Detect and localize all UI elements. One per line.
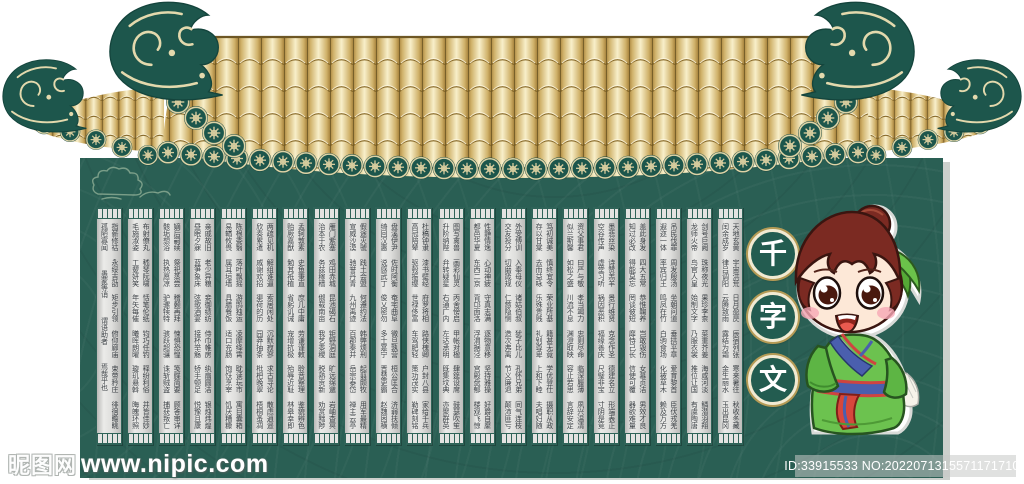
phrase: 言辞安定 <box>566 401 574 429</box>
phrase: 俶载南亩 <box>317 294 325 322</box>
phrase: 露结为霜 <box>721 330 729 358</box>
phrase: 寒来暑往 <box>731 365 739 393</box>
phrase: 济弱扶倾 <box>390 401 398 429</box>
phrase: 器欲难量 <box>628 401 636 429</box>
eave-flower-icon <box>709 152 732 175</box>
phrase: 年矢每催 <box>131 294 139 322</box>
phrase: 省躬讥诫 <box>286 294 294 322</box>
phrase: 鸣凤在竹 <box>659 294 667 322</box>
phrase: 克念作圣 <box>607 330 615 358</box>
phrase: 垂拱平章 <box>669 330 677 358</box>
meander-border <box>470 433 494 444</box>
phrase: 夙兴温凊 <box>576 401 584 429</box>
phrase: 耽读玩市 <box>235 365 243 393</box>
meander-border <box>314 208 338 219</box>
text-strip: 吊民伐罪周发殷汤坐朝问道垂拱平章爱育黎首臣伏戎羌遐迩一体率宾归王鸣凤在竹白驹食场… <box>655 207 681 445</box>
phrase: 信使可覆 <box>628 365 636 393</box>
eave-flower-icon <box>222 134 246 158</box>
phrase: 用军最精 <box>359 401 367 429</box>
phrase: 果珍李柰 <box>700 294 708 322</box>
text-strip: 资父事君曰严与敬孝当竭力忠则尽命临深履薄夙兴温凊似兰斯馨如松之盛川流不息渊澄取映… <box>562 207 588 445</box>
phrase: 税熟贡新 <box>317 365 325 393</box>
phrase: 我艺黍稷 <box>317 330 325 358</box>
strip-column-right: 外受傅训入奉母仪诸姑伯叔犹子比儿孔怀兄弟同气连枝 <box>514 223 522 429</box>
phrase: 嵇琴阮啸 <box>142 259 150 287</box>
meander-border <box>252 433 276 444</box>
phrase: 索居闲处 <box>266 294 274 322</box>
phrase: 寸阴是竞 <box>597 401 605 429</box>
strip-column-left: 昼眠夕寐蓝笋象床弦歌酒宴接杯举觞矫手顿足悦豫且康 <box>193 223 201 429</box>
strip-column-right: 杜稿钟隶漆书壁经府罗将相路侠槐卿户封八县家给千兵 <box>421 223 429 429</box>
phrase: 律吕调阳 <box>721 259 729 287</box>
phrase: 岂敢毁伤 <box>638 330 646 358</box>
phrase: 旷远绵邈 <box>328 365 336 393</box>
phrase: 妾御绩纺 <box>204 294 212 322</box>
eave-flower-icon <box>548 157 571 180</box>
phrase: 易輶攸畏 <box>224 223 232 251</box>
phrase: 赖及万方 <box>659 401 667 429</box>
eave-flower-icon <box>798 121 822 145</box>
phrase: 桓公匡合 <box>390 365 398 393</box>
phrase: 楼观飞惊 <box>473 401 481 429</box>
text-strip: 孟轲敦素史鱼秉直庶几中庸劳谦谨敕聆音察理鉴貌辨色贻厥嘉猷勉其祗植省躬讥诫宠增抗极… <box>282 207 308 445</box>
phrase: 仁慈隐恻 <box>504 294 512 322</box>
phrase: 渊澄取映 <box>566 330 574 358</box>
eave-flower-icon <box>410 156 433 179</box>
phrase: 德建名立 <box>607 365 615 393</box>
phrase: 岳宗泰岱 <box>348 365 356 393</box>
meander-border <box>159 433 183 444</box>
phrase: 鸡田赤城 <box>328 259 336 287</box>
phrase: 两疏见机 <box>266 223 274 251</box>
phrase: 始制文字 <box>690 294 698 322</box>
meander-border <box>656 433 680 444</box>
phrase: 曦晖朗曜 <box>131 330 139 358</box>
phrase: 宠增抗极 <box>286 330 294 358</box>
phrase: 家给千兵 <box>421 401 429 429</box>
phrase: 云腾致雨 <box>721 294 729 322</box>
strip-column-left: 遐迩一体率宾归王鸣凤在竹白驹食场化被草木赖及万方 <box>659 223 667 429</box>
eave-flower-icon <box>801 145 824 168</box>
meander-border <box>345 208 369 219</box>
phrase: 诗赞羔羊 <box>607 259 615 287</box>
phrase: 老少异粮 <box>204 259 212 287</box>
phrase: 夫唱妇随 <box>535 401 543 429</box>
phrase: 昼眠夕寐 <box>193 223 201 251</box>
text-strip: 笃初诚美慎终宜令荣业所基籍甚无竟学优登仕摄职从政存以甘棠去而益咏乐殊贵贱礼别尊卑… <box>531 207 557 445</box>
phrase: 虚堂习听 <box>597 259 605 287</box>
phrase: 韩弊烦刑 <box>359 330 367 358</box>
phrase: 勉其祗植 <box>286 259 294 287</box>
phrase: 都邑华夏 <box>473 223 481 251</box>
phrase: 聆音察理 <box>297 365 305 393</box>
roof-finial-icon <box>801 2 914 100</box>
phrase: 孝当竭力 <box>576 294 584 322</box>
phrase: 矩步引领 <box>110 294 118 322</box>
phrase: 甲帐对楹 <box>452 330 460 358</box>
strip-column-left: 孤陋寡闻愚蒙等诮谓语助者焉哉乎也 <box>100 223 108 429</box>
phrase: 祸因恶积 <box>597 294 605 322</box>
strip-column-right: 盘溪伊尹佐时阿衡奄宅曲阜微旦孰营桓公匡合济弱扶倾 <box>390 223 398 429</box>
phrase: 空谷传声 <box>597 223 605 251</box>
phrase: 鉴貌辨色 <box>297 401 305 429</box>
phrase: 坚持雅操 <box>483 365 491 393</box>
strip-column-right: 剑号巨阙珠称夜光果珍李柰菜重芥姜海咸河淡鳞潜羽翔 <box>700 223 708 429</box>
phrase: 日月盈昃 <box>731 294 739 322</box>
phrase: 忠则尽命 <box>576 330 584 358</box>
strip-column-left: 空谷传声虚堂习听祸因恶积福缘善庆尺璧非宝寸阴是竞 <box>597 223 605 429</box>
phrase: 宫殿盘郁 <box>473 365 481 393</box>
text-strip: 盘溪伊尹佐时阿衡奄宅曲阜微旦孰营桓公匡合济弱扶倾绮回汉惠说感武丁俊乂密勿多士寔宁… <box>375 207 401 445</box>
meander-border <box>97 433 121 444</box>
strip-column-right: 陈根委翳落叶飘摇游鹍独运凌摩绛霄耽读玩市寓目囊箱 <box>235 223 243 429</box>
phrase: 弁转疑星 <box>441 259 449 287</box>
phrase: 嫡后嗣续 <box>173 223 181 251</box>
eave-flower-icon <box>203 145 226 168</box>
phrase: 男效才良 <box>638 401 646 429</box>
eave-flower-icon <box>272 150 295 173</box>
phrase: 女慕贞洁 <box>638 365 646 393</box>
text-strip: 亲戚故旧老少异粮妾御绩纺侍巾帷房纨扇圆洁银烛炜煌昼眠夕寐蓝笋象床弦歌酒宴接杯举觞… <box>189 207 215 445</box>
phrase: 乃服衣裳 <box>690 330 698 358</box>
text-strip: 指薪修祜永绥吉劭矩步引领俯仰廊庙束带矜庄徘徊瞻眺孤陋寡闻愚蒙等诮谓语助者焉哉乎也 <box>96 207 122 445</box>
phrase: 矫手顿足 <box>193 365 201 393</box>
meander-border <box>439 208 463 219</box>
phrase: 逐物意移 <box>483 330 491 358</box>
phrase: 去而益咏 <box>535 259 543 287</box>
strip-column-left: 龙师火帝鸟官人皇始制文字乃服衣裳推位让国有虞陶唐 <box>690 223 698 429</box>
phrase: 祭祀蒸尝 <box>173 259 181 287</box>
phrase: 肆筵设席 <box>452 365 460 393</box>
phrase: 枇杷晚翠 <box>255 365 263 393</box>
phrase: 奄宅曲阜 <box>390 294 398 322</box>
phrase: 浮渭据泾 <box>473 330 481 358</box>
phrase: 鸟官人皇 <box>690 259 698 287</box>
phrase: 鳞潜羽翔 <box>700 401 708 429</box>
text-strip: 雁门紫塞鸡田赤城昆池碣石钜野洞庭旷远绵邈岩岫杳冥治本于农务兹稼穑俶载南亩我艺黍稷… <box>313 207 339 445</box>
phrase: 化被草木 <box>659 365 667 393</box>
meander-border <box>501 208 525 219</box>
phrase: 绮回汉惠 <box>379 223 387 251</box>
meander-border <box>501 433 525 444</box>
meander-border <box>594 208 618 219</box>
meander-border <box>532 208 556 219</box>
phrase: 钧巧任钓 <box>142 330 150 358</box>
strip-column-right: 布射僚丸嵇琴阮啸恬笔伦纸钧巧任钓释纷利俗并皆佳妙 <box>142 223 150 429</box>
phrase: 孔怀兄弟 <box>514 365 522 393</box>
meander-border <box>656 208 680 219</box>
phrase: 东西二京 <box>473 259 481 287</box>
eave-flower-icon <box>138 145 159 166</box>
phrase: 稽颡再拜 <box>173 294 181 322</box>
phrase: 遐迩一体 <box>659 223 667 251</box>
phrase: 具膳餐饭 <box>224 294 232 322</box>
eave-flower-icon <box>640 155 663 178</box>
phrase: 愚蒙等诮 <box>100 270 108 298</box>
phrase: 背邙面洛 <box>473 294 481 322</box>
meander-border <box>594 433 618 444</box>
phrase: 接杯举觞 <box>193 330 201 358</box>
phrase: 永绥吉劭 <box>110 259 118 287</box>
phrase: 诛斩贼盗 <box>162 365 170 393</box>
strip-column-right: 假途灭虢践土会盟何遵约法韩弊烦刑起翦颇牧用军最精 <box>359 223 367 429</box>
stock-id-text: ID:33915533 NO:20220713155711717104 <box>784 459 1024 473</box>
text-strip: 外受傅训入奉母仪诸姑伯叔犹子比儿孔怀兄弟同气连枝交友投分切磨箴规仁慈隐恻造次弗离… <box>500 207 526 445</box>
phrase: 路侠槐卿 <box>421 330 429 358</box>
strip-column-left: 交友投分切磨箴规仁慈隐恻造次弗离节义廉退颠沛匪亏 <box>504 223 512 429</box>
meander-border <box>687 433 711 444</box>
phrase: 践土会盟 <box>359 259 367 287</box>
phrase: 散虑逍遥 <box>266 401 274 429</box>
phrase: 戚谢欢招 <box>255 259 263 287</box>
strip-column-right: 两疏见机解组谁逼索居闲处沉默寂寥求古寻论散虑逍遥 <box>266 223 274 429</box>
phrase: 弦歌酒宴 <box>193 294 201 322</box>
phrase: 并皆佳妙 <box>142 401 150 429</box>
strip-column-left: 高冠陪辇驱毂振缨世禄侈富车驾肥轻策功茂实勒碑刻铭 <box>410 223 418 429</box>
phrase: 菜重芥姜 <box>700 330 708 358</box>
meander-border <box>407 208 431 219</box>
phrase: 犹子比儿 <box>514 330 522 358</box>
phrase: 存以甘棠 <box>535 223 543 251</box>
phrase: 策功茂实 <box>410 365 418 393</box>
strip-column-right: 资父事君曰严与敬孝当竭力忠则尽命临深履薄夙兴温凊 <box>576 223 584 429</box>
meander-border <box>283 433 307 444</box>
phrase: 爱育黎首 <box>669 365 677 393</box>
phrase: 欣奏累遣 <box>255 223 263 251</box>
text-strip: 图写禽兽画彩仙灵丙舍傍启甲帐对楹肆筵设席鼓瑟吹笙升阶纳陛弁转疑星右通广内左达承明… <box>438 207 464 445</box>
phrase: 盘溪伊尹 <box>390 223 398 251</box>
phrase: 亦聚群英 <box>441 401 449 429</box>
phrase: 劝赏黜陟 <box>317 401 325 429</box>
strip-column-right: 指薪修祜永绥吉劭矩步引领俯仰廊庙束带矜庄徘徊瞻眺 <box>110 223 118 429</box>
phrase: 秋收冬藏 <box>731 401 739 429</box>
phrase: 乐殊贵贱 <box>535 294 543 322</box>
meander-border <box>252 208 276 219</box>
phrase: 纨扇圆洁 <box>204 365 212 393</box>
strip-column-right: 天地玄黄宇宙洪荒日月盈昃辰宿列张寒来暑往秋收冬藏 <box>731 223 739 429</box>
phrase: 恬笔伦纸 <box>142 294 150 322</box>
phrase: 起翦颇牧 <box>359 365 367 393</box>
phrase: 宇宙洪荒 <box>731 259 739 287</box>
phrase: 丙舍傍启 <box>452 294 460 322</box>
phrase: 布射僚丸 <box>142 223 150 251</box>
phrase: 属耳垣墙 <box>224 259 232 287</box>
phrase: 四大五常 <box>638 259 646 287</box>
phrase: 治本于农 <box>317 223 325 251</box>
strip-column-left: 易輶攸畏属耳垣墙具膳餐饭适口充肠饱饫烹宰饥厌糟糠 <box>224 223 232 429</box>
eave-flower-icon <box>778 134 802 158</box>
phrase: 百郡秦并 <box>348 330 356 358</box>
phrase: 龙师火帝 <box>690 223 698 251</box>
phrase: 形端表正 <box>607 401 615 429</box>
meander-border <box>407 433 431 444</box>
phrase: 岩岫杳冥 <box>328 401 336 429</box>
meander-border <box>532 433 556 444</box>
phrase: 捕获叛亡 <box>162 401 170 429</box>
phrase: 尺璧非宝 <box>597 365 605 393</box>
strip-column-left: 贻厥嘉猷勉其祗植省躬讥诫宠增抗极殆辱近耻林皋幸即 <box>286 223 294 429</box>
strip-column-right: 图写禽兽画彩仙灵丙舍傍启甲帐对楹肆筵设席鼓瑟吹笙 <box>452 223 460 429</box>
meander-border <box>97 208 121 219</box>
phrase: 钜野洞庭 <box>328 330 336 358</box>
phrase: 庶几中庸 <box>297 294 305 322</box>
eave-flower-icon <box>364 155 387 178</box>
meander-border <box>718 208 742 219</box>
phrase: 凌摩绛霄 <box>235 330 243 358</box>
meander-border <box>283 208 307 219</box>
strip-column-left: 都邑华夏东西二京背邙面洛浮渭据泾宫殿盘郁楼观飞惊 <box>473 223 481 429</box>
phrase: 晦魄环照 <box>131 401 139 429</box>
meander-border <box>128 433 152 444</box>
eave-flower-icon <box>525 158 548 181</box>
phrase: 如松之盛 <box>566 259 574 287</box>
text-strip: 两疏见机解组谁逼索居闲处沉默寂寥求古寻论散虑逍遥欣奏累遣戚谢欢招渠荷的历园莽抽条… <box>251 207 277 445</box>
meander-border <box>159 208 183 219</box>
phrase: 颠沛匪亏 <box>504 401 512 429</box>
phrase: 微旦孰营 <box>390 330 398 358</box>
phrase: 吊民伐罪 <box>669 223 677 251</box>
phrase: 驱毂振缨 <box>410 259 418 287</box>
strip-column-left: 似兰斯馨如松之盛川流不息渊澄取映容止若思言辞安定 <box>566 223 574 429</box>
text-strip: 墨悲丝染诗赞羔羊景行维贤克念作圣德建名立形端表正空谷传声虚堂习听祸因恶积福缘善庆… <box>593 207 619 445</box>
phrase: 上和下睦 <box>535 365 543 393</box>
strip-column-right: 嫡后嗣续祭祀蒸尝稽颡再拜悚惧恐惶笺牒简要顾答审详 <box>173 223 181 429</box>
eave-flower-icon <box>318 153 341 176</box>
watermark: 昵图网 www.nipic.com <box>8 448 269 480</box>
phrase: 孟轲敦素 <box>297 223 305 251</box>
phrase: 俊乂密勿 <box>379 294 387 322</box>
roof <box>0 0 1024 195</box>
eave-flower-icon <box>617 156 640 179</box>
phrase: 林皋幸即 <box>286 401 294 429</box>
phrase: 俯仰廊庙 <box>110 330 118 358</box>
phrase: 求古寻论 <box>266 365 274 393</box>
meander-border <box>563 208 587 219</box>
strip-column-right: 盖此身发四大五常恭惟鞠养岂敢毁伤女慕贞洁男效才良 <box>638 223 646 429</box>
phrase: 天地玄黄 <box>731 223 739 251</box>
phrase: 车驾肥轻 <box>410 330 418 358</box>
strip-column-right: 亲戚故旧老少异粮妾御绩纺侍巾帷房纨扇圆洁银烛炜煌 <box>204 223 212 429</box>
phrase: 升阶纳陛 <box>441 223 449 251</box>
phrase: 笺牒简要 <box>173 365 181 393</box>
phrase: 务兹稼穑 <box>317 259 325 287</box>
phrase: 多士寔宁 <box>379 330 387 358</box>
phrase: 梧桐蚤凋 <box>255 401 263 429</box>
strip-column-left: 闰余成岁律吕调阳云腾致雨露结为霜金生丽水玉出昆冈 <box>721 223 729 429</box>
phrase: 饱饫烹宰 <box>224 365 232 393</box>
strip-column-left: 治本于农务兹稼穑俶载南亩我艺黍稷税熟贡新劝赏黜陟 <box>317 223 325 429</box>
phrase: 佐时阿衡 <box>390 259 398 287</box>
roof-finial-icon <box>3 60 87 132</box>
phrase: 游鹍独运 <box>235 294 243 322</box>
eave-flower-icon <box>341 154 364 177</box>
phrase: 悦豫且康 <box>193 401 201 429</box>
phrase: 图写禽兽 <box>452 223 460 251</box>
phrase: 右通广内 <box>441 294 449 322</box>
site-url-text: www.nipic.com <box>81 450 269 479</box>
eave-flower-icon <box>866 145 887 166</box>
eave-flower-icon <box>112 137 133 158</box>
meander-border <box>190 433 214 444</box>
phrase: 容止若思 <box>566 365 574 393</box>
meander-border <box>128 208 152 219</box>
phrase: 何遵约法 <box>359 294 367 322</box>
phrase: 银烛炜煌 <box>204 401 212 429</box>
text-strip: 嫡后嗣续祭祀蒸尝稽颡再拜悚惧恐惶笺牒简要顾答审详骸垢想浴执热愿凉驴骡犊特骇跃超骧… <box>158 207 184 445</box>
eave-flower-icon <box>86 129 107 150</box>
phrase: 好爵自縻 <box>483 401 491 429</box>
phrase: 珠称夜光 <box>700 259 708 287</box>
phrase: 墨悲丝染 <box>607 223 615 251</box>
phrase: 靡恃己长 <box>628 330 636 358</box>
strip-column-right: 雁门紫塞鸡田赤城昆池碣石钜野洞庭旷远绵邈岩岫杳冥 <box>328 223 336 429</box>
strip-column-right: 吊民伐罪周发殷汤坐朝问道垂拱平章爱育黎首臣伏戎羌 <box>669 223 677 429</box>
eave-flower-icon <box>755 149 778 172</box>
strips-row: 天地玄黄宇宙洪荒日月盈昃辰宿列张寒来暑往秋收冬藏闰余成岁律吕调阳云腾致雨露结为霜… <box>96 207 743 445</box>
phrase: 恭惟鞠养 <box>638 294 646 322</box>
phrase: 园莽抽条 <box>255 330 263 358</box>
phrase: 雁门紫塞 <box>328 223 336 251</box>
eave-flower-icon <box>502 158 525 181</box>
meander-border <box>345 433 369 444</box>
phrase: 心动神疲 <box>483 259 491 287</box>
phrase: 孤陋寡闻 <box>100 223 108 251</box>
phrase: 玉出昆冈 <box>721 401 729 429</box>
phrase: 坐朝问道 <box>669 294 677 322</box>
meander-border <box>376 433 400 444</box>
roof-finial-icon <box>938 60 1022 132</box>
strip-column-left: 升阶纳陛弁转疑星右通广内左达承明既集坟典亦聚群英 <box>441 223 449 429</box>
phrase: 昆池碣石 <box>328 294 336 322</box>
phrase: 解组谁逼 <box>266 259 274 287</box>
strip-column-left: 毛施淑姿工颦妍笑年矢每催曦晖朗曜璇玑悬斡晦魄环照 <box>131 223 139 429</box>
phrase: 得能莫忘 <box>628 259 636 287</box>
eave-flower-icon <box>686 153 709 176</box>
phrase: 鼓瑟吹笙 <box>452 401 460 429</box>
phrase: 罔谈彼短 <box>628 294 636 322</box>
meander-border <box>687 208 711 219</box>
phrase: 福缘善庆 <box>597 330 605 358</box>
text-strip: 杜稿钟隶漆书壁经府罗将相路侠槐卿户封八县家给千兵高冠陪辇驱毂振缨世禄侈富车驾肥轻… <box>406 207 432 445</box>
text-strip: 性静情逸心动神疲守真志满逐物意移坚持雅操好爵自縻都邑华夏东西二京背邙面洛浮渭据泾… <box>469 207 495 445</box>
phrase: 骸垢想浴 <box>162 223 170 251</box>
phrase: 似兰斯馨 <box>566 223 574 251</box>
phrase: 率宾归王 <box>659 259 667 287</box>
phrase: 宣威沙漠 <box>348 223 356 251</box>
phrase: 籍甚无竟 <box>545 330 553 358</box>
phrase: 周发殷汤 <box>669 259 677 287</box>
text-strip: 剑号巨阙珠称夜光果珍李柰菜重芥姜海咸河淡鳞潜羽翔龙师火帝鸟官人皇始制文字乃服衣裳… <box>686 207 712 445</box>
phrase: 悚惧恐惶 <box>173 330 181 358</box>
phrase: 寓目囊箱 <box>235 401 243 429</box>
phrase: 交友投分 <box>504 223 512 251</box>
text-strip: 天地玄黄宇宙洪荒日月盈昃辰宿列张寒来暑往秋收冬藏闰余成岁律吕调阳云腾致雨露结为霜… <box>717 207 743 445</box>
mascot-character <box>780 198 935 438</box>
phrase: 慎终宜令 <box>545 259 553 287</box>
strip-column-left: 绮回汉惠说感武丁俊乂密勿多士寔宁晋楚更霸赵魏困横 <box>379 223 387 429</box>
phrase: 禅主云亭 <box>348 401 356 429</box>
phrase: 焉哉乎也 <box>100 363 108 391</box>
phrase: 既集坟典 <box>441 365 449 393</box>
eave-flower-icon <box>594 156 617 179</box>
phrase: 侍巾帷房 <box>204 330 212 358</box>
meander-border <box>376 208 400 219</box>
eave-flower-icon <box>387 156 410 179</box>
strip-column-right: 孟轲敦素史鱼秉直庶几中庸劳谦谨敕聆音察理鉴貌辨色 <box>297 223 305 429</box>
poster-canvas: 天地玄黄宇宙洪荒日月盈昃辰宿列张寒来暑往秋收冬藏闰余成岁律吕调阳云腾致雨露结为霜… <box>0 0 1024 484</box>
phrase: 性静情逸 <box>483 223 491 251</box>
eave-flower-icon <box>892 137 913 158</box>
